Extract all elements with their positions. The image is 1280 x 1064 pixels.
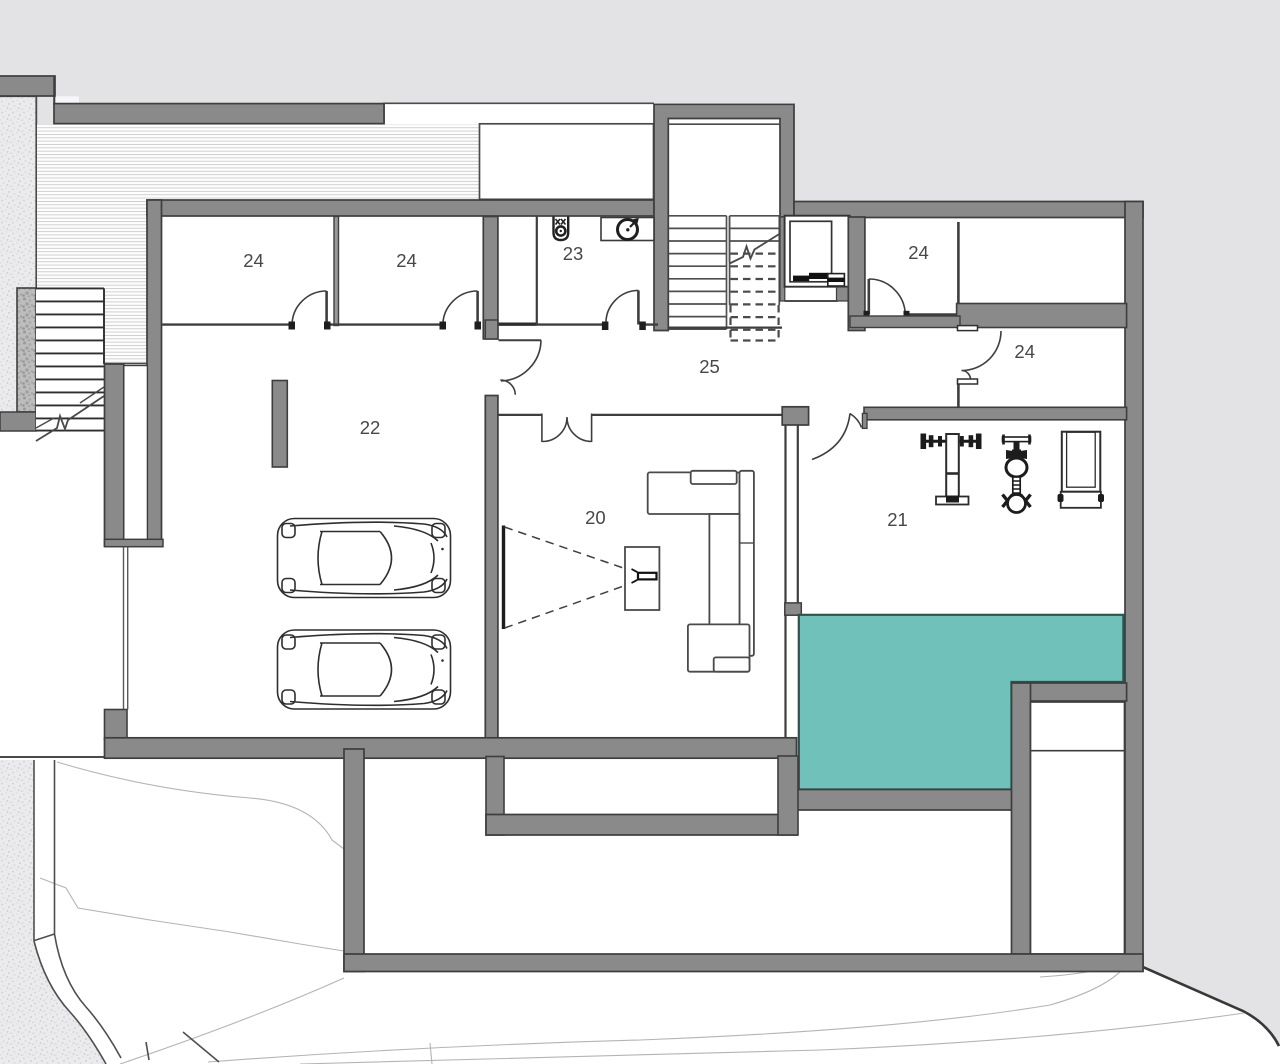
svg-text:21: 21 — [887, 509, 908, 530]
svg-text:22: 22 — [360, 417, 381, 438]
svg-text:24: 24 — [396, 250, 417, 271]
svg-text:23: 23 — [563, 243, 584, 264]
svg-text:24: 24 — [1014, 341, 1035, 362]
svg-text:20: 20 — [585, 507, 606, 528]
svg-text:24: 24 — [908, 242, 929, 263]
svg-text:24: 24 — [243, 250, 264, 271]
svg-text:25: 25 — [699, 356, 720, 377]
